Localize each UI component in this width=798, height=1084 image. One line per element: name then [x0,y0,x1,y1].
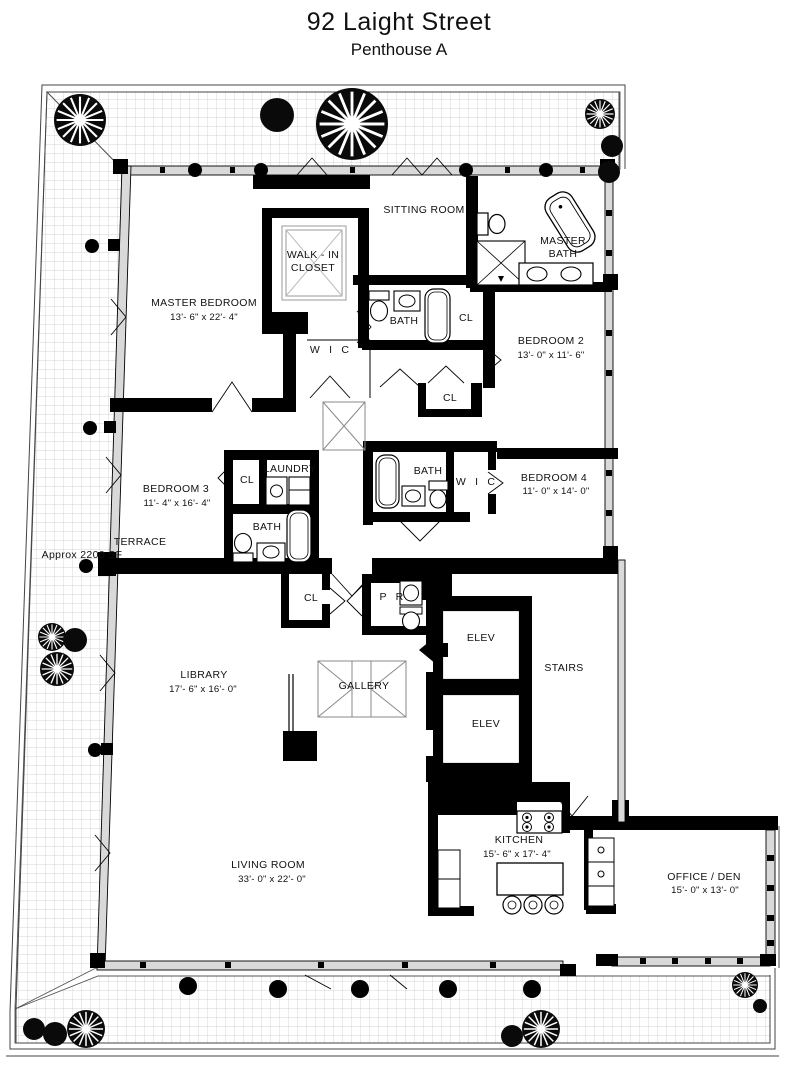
bush-icon [63,628,87,652]
tree-icon [316,88,388,160]
room-dims-master-bedroom: 13'- 6" x 22'- 4" [170,312,238,324]
bedroom3-bath-fixtures [233,510,311,562]
room-label-gallery: GALLERY [339,680,390,692]
room-label-stairs: STAIRS [544,662,583,674]
room-label-gallery-closet: CL [304,592,318,604]
toilet-icon [233,534,253,563]
room-label-office-den: OFFICE / DEN [667,871,741,883]
page-subtitle: Penthouse A [0,40,798,60]
tree-icon [67,1010,105,1048]
room-label-bedroom4-bath: BATH [414,465,443,477]
toilet-icon [477,213,505,235]
sink-icon [257,543,285,562]
stool-icons [503,896,563,914]
room-label-library: LIBRARY [180,669,227,681]
room-label-bedroom-2: BEDROOM 2 [518,335,584,347]
sink-icon [402,486,425,506]
room-label-bedroom4-wic: W I C [456,476,498,488]
bush-icon [260,98,294,132]
sink-icon [519,263,593,285]
room-label-bedroom3-bath: BATH [253,521,282,533]
terrace-area-label: Approx 2200 SF [42,549,123,561]
room-label-bedroom-3: BEDROOM 3 [143,483,209,495]
room-label-bedroom3-closet: CL [240,474,254,486]
bathtub-icon [425,289,450,343]
room-dims-bedroom-3: 11'- 4" x 16'- 4" [143,498,210,510]
room-label-elevator-1: ELEV [467,632,495,644]
room-dims-library: 17'- 6" x 16'- 0" [169,684,237,696]
room-label-sitting-room: SITTING ROOM [383,204,464,216]
laundry-fixtures [266,477,310,505]
room-dims-bedroom-2: 13'- 0" x 11'- 6" [517,350,584,362]
terrace-label: TERRACE [114,536,167,548]
room-label-laundry: LAUNDRY [264,463,316,475]
bathtub-icon [376,455,399,508]
room-label-elevator-2: ELEV [472,718,500,730]
tree-icon [40,652,74,686]
powder-room-fixtures [400,581,422,630]
sink-icon [394,291,420,311]
shower-icon [477,241,525,285]
room-label-master-bedroom: MASTER BEDROOM [151,297,257,309]
room-label-walk-in-closet: WALK - IN CLOSET [287,249,339,274]
room-dims-kitchen: 15'- 6" x 17'- 4" [483,849,551,861]
bush-icon [753,999,767,1013]
stairs-east-wall [618,560,625,822]
skylight-icon [323,402,365,450]
room-label-hall-closet: CL [459,312,473,324]
dryer-icon [289,477,310,505]
room-dims-office-den: 15'- 0" x 13'- 0" [671,885,739,897]
bush-icon [501,1025,523,1047]
bedroom4-bath-fixtures [376,455,448,508]
tree-icon [522,1010,560,1048]
tree-icon [732,972,758,998]
tree-icon [38,623,66,651]
bathtub-icon [287,510,311,562]
bush-icon [601,135,623,157]
fireplace-partition [289,674,293,731]
bush-icon [598,161,620,183]
toilet-icon [369,291,389,321]
stove-icon [517,811,562,833]
room-label-hall-bath: BATH [390,315,419,327]
room-dims-living-room: 33'- 0" x 22'- 0" [238,874,306,886]
bush-icon [23,1018,45,1040]
room-label-master-wic: W I C [310,344,352,356]
washer-icon [266,477,287,505]
room-label-powder-room: P R [380,591,407,603]
room-dims-bedroom-4: 11'- 0" x 14'- 0" [522,486,589,498]
room-label-master-bath: MASTER BATH [540,235,586,260]
room-label-kitchen: KITCHEN [495,834,544,846]
floor-plan-page: 92 Laight Street Penthouse A [0,0,798,1084]
room-label-bedroom2-closet: CL [443,392,457,404]
room-label-living-room: LIVING ROOM [231,859,305,871]
header: 92 Laight Street Penthouse A [0,0,798,60]
tree-icon [54,94,106,146]
toilet-icon [429,481,448,508]
tree-icon [585,99,615,129]
bush-icon [43,1022,67,1046]
room-label-bedroom-4: BEDROOM 4 [521,472,587,484]
kitchen-island-icon [497,863,563,895]
page-title: 92 Laight Street [0,8,798,37]
